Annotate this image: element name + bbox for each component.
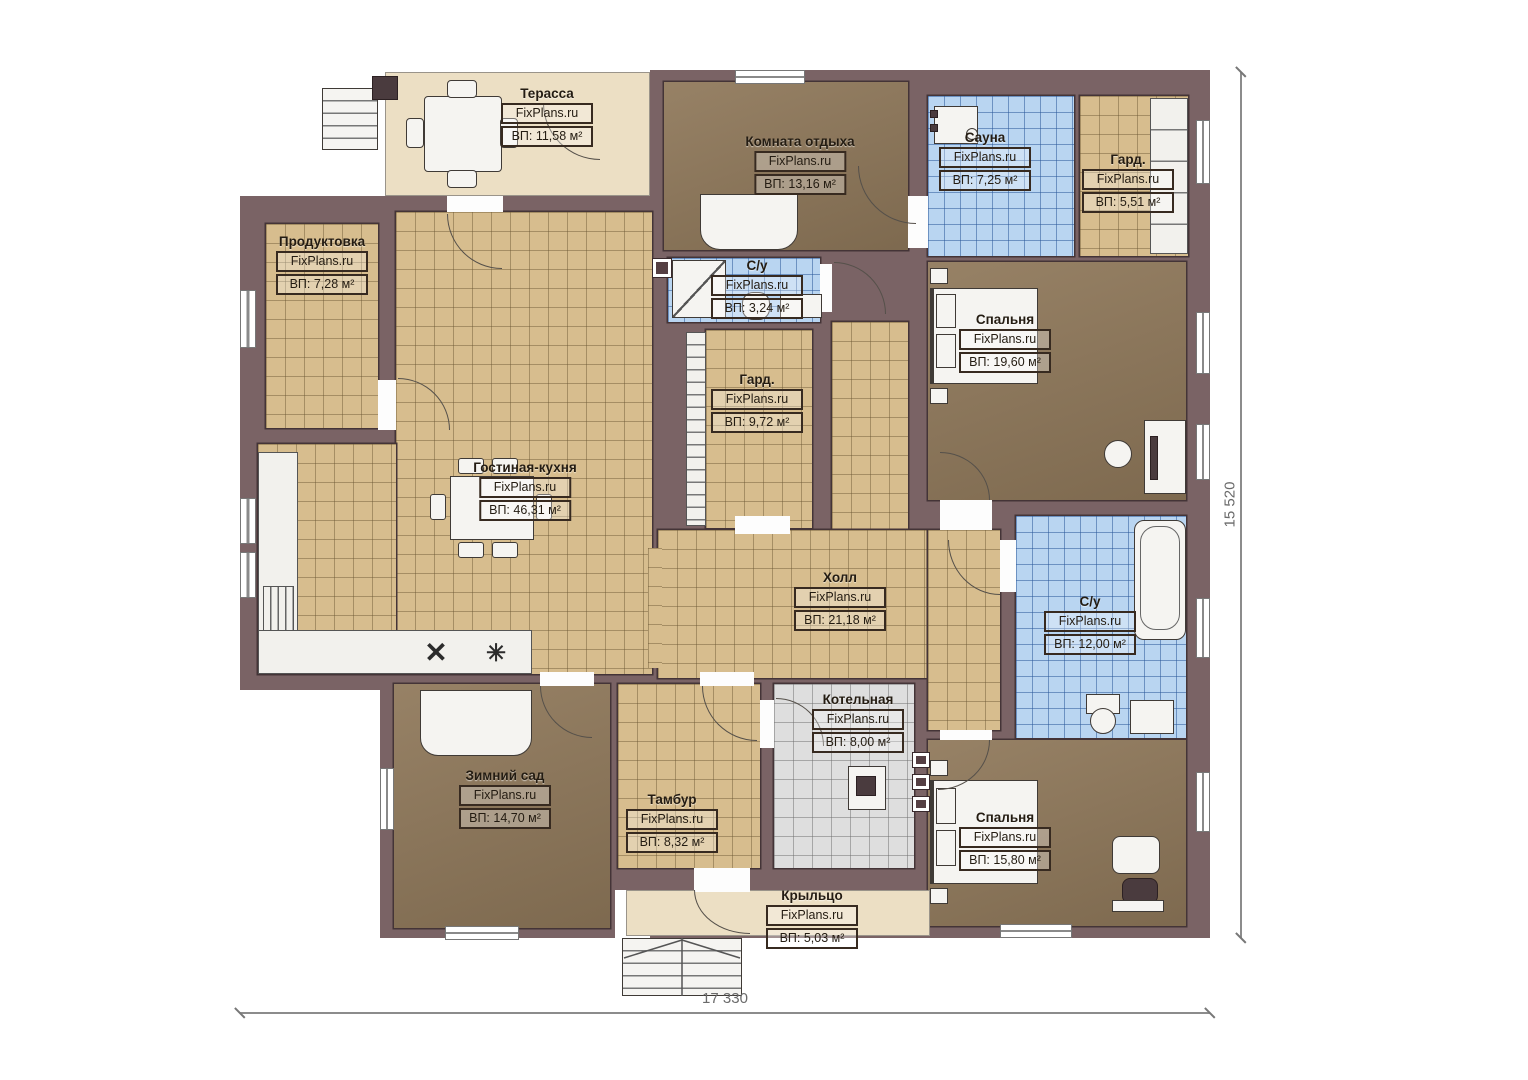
room-name: Гард.: [1110, 152, 1145, 167]
brand-watermark: FixPlans.ru: [459, 785, 551, 806]
bedroom1-nightstand-1: [930, 268, 948, 284]
door-opening-bathroom-large: [1000, 540, 1016, 592]
bedroom2-tray: [1112, 900, 1164, 912]
room-area: ВП: 9,72 м²: [711, 412, 803, 433]
chimney-panel: [652, 258, 672, 278]
brand-watermark: FixPlans.ru: [1044, 611, 1136, 632]
door-opening-bedroom2: [940, 730, 992, 740]
room-label-winter-garden: Зимний сад FixPlans.ru ВП: 14,70 м²: [459, 768, 551, 829]
window-living-left-2: [240, 552, 256, 598]
terrace-stairs: [322, 88, 378, 150]
dining-chair-5: [430, 494, 446, 520]
room-name: С/у: [1079, 594, 1100, 609]
door-opening-bedroom1: [940, 500, 992, 530]
bedroom2-nightstand-2: [930, 888, 948, 904]
room-area: ВП: 7,28 м²: [276, 274, 368, 295]
toilet-large-bowl: [1090, 708, 1116, 734]
terrace-pillar: [372, 76, 398, 100]
room-label-boiler: Котельная FixPlans.ru ВП: 8,00 м²: [812, 692, 904, 753]
room-label-rest-room: Комната отдыха FixPlans.ru ВП: 13,16 м²: [745, 134, 854, 195]
door-opening-vestibule: [700, 672, 754, 686]
bedroom2-crib: [1112, 836, 1160, 874]
window-bedroom2-bottom: [1000, 924, 1072, 938]
bedroom1-tv: [1150, 436, 1158, 480]
room-name: Тамбур: [648, 792, 697, 807]
terrace-table: [424, 96, 502, 172]
rest-room-sofa: [700, 194, 798, 250]
room-label-wardrobe2: Гард. FixPlans.ru ВП: 9,72 м²: [711, 372, 803, 433]
room-label-bedroom2: Спальня FixPlans.ru ВП: 15,80 м²: [959, 810, 1051, 871]
brand-watermark: FixPlans.ru: [711, 389, 803, 410]
dining-chair-4: [492, 542, 518, 558]
room-name: Гард.: [739, 372, 774, 387]
electrical-panel-2: [912, 774, 930, 790]
room-area: ВП: 8,00 м²: [812, 732, 904, 753]
fridge: [263, 586, 294, 634]
brand-watermark: FixPlans.ru: [812, 709, 904, 730]
stove-icon: ✕: [410, 634, 462, 672]
door-opening-front: [694, 868, 750, 892]
room-area: ВП: 8,32 м²: [626, 832, 718, 853]
dimension-line-vertical: [1240, 72, 1242, 938]
window-bedroom2-right: [1196, 772, 1210, 832]
room-name: Крыльцо: [781, 888, 842, 903]
brand-watermark: FixPlans.ru: [626, 809, 718, 830]
room-living-kitchen-floor: [396, 212, 652, 674]
bedroom1-nightstand-2: [930, 388, 948, 404]
bedroom1-pillow-2: [936, 334, 956, 368]
window-living-left-1: [240, 498, 256, 544]
room-area: ВП: 21,18 м²: [794, 610, 886, 631]
room-name: Спальня: [976, 312, 1034, 327]
terrace-chair-top: [447, 80, 477, 98]
winter-garden-sofa: [420, 690, 532, 756]
boiler-core: [856, 776, 876, 796]
room-name: Холл: [823, 570, 857, 585]
porch-stairs: [622, 938, 742, 996]
door-opening-wardrobe2: [735, 516, 790, 534]
porch-stairs-arrow: [622, 938, 742, 996]
brand-watermark: FixPlans.ru: [959, 827, 1051, 848]
bedroom1-pillow-1: [936, 294, 956, 328]
room-label-pantry: Продуктовка FixPlans.ru ВП: 7,28 м²: [276, 234, 368, 295]
room-name: Комната отдыха: [745, 134, 854, 149]
electrical-panel-1: [912, 752, 930, 768]
room-area: ВП: 15,80 м²: [959, 850, 1051, 871]
bedroom2-pillow-1: [936, 788, 956, 824]
terrace-chair-left: [406, 118, 424, 148]
room-area: ВП: 14,70 м²: [459, 808, 551, 829]
window-bedroom1-right-1: [1196, 312, 1210, 374]
room-label-hall: Холл FixPlans.ru ВП: 21,18 м²: [794, 570, 886, 631]
brand-watermark: FixPlans.ru: [959, 329, 1051, 350]
room-area: ВП: 19,60 м²: [959, 352, 1051, 373]
dimension-height-value: 15 520: [1222, 470, 1239, 540]
sauna-vent-2: [930, 124, 938, 132]
window-bedroom1-right-2: [1196, 424, 1210, 480]
room-label-terrace: Терасса FixPlans.ru ВП: 11,58 м²: [501, 86, 593, 147]
bedroom1-chair: [1104, 440, 1132, 468]
room-name: Продуктовка: [279, 234, 365, 249]
room-label-bathroom-small: С/у FixPlans.ru ВП: 3,24 м²: [711, 258, 803, 319]
bedroom2-pillow-2: [936, 830, 956, 866]
door-opening-pantry: [378, 380, 396, 430]
dimension-line-horizontal: [240, 1012, 1210, 1014]
room-area: ВП: 12,00 м²: [1044, 634, 1136, 655]
electrical-panel-3: [912, 796, 930, 812]
sauna-vent-1: [930, 110, 938, 118]
dining-chair-3: [458, 542, 484, 558]
brand-watermark: FixPlans.ru: [1082, 169, 1174, 190]
washer: [1130, 700, 1174, 734]
room-area: ВП: 5,03 м²: [766, 928, 858, 949]
room-name: Гостиная-кухня: [473, 460, 576, 475]
brand-watermark: FixPlans.ru: [501, 103, 593, 124]
room-name: Котельная: [823, 692, 894, 707]
door-opening-terrace-living: [447, 196, 503, 212]
room-label-wardrobe1: Гард. FixPlans.ru ВП: 5,51 м²: [1082, 152, 1174, 213]
room-area: ВП: 13,16 м²: [754, 174, 846, 195]
hall-corridor-floor: [832, 322, 908, 534]
wardrobe2-closet: [686, 332, 706, 526]
room-label-porch: Крыльцо FixPlans.ru ВП: 5,03 м²: [766, 888, 858, 949]
window-wardrobe1-right: [1196, 120, 1210, 184]
window-winter-garden-bottom: [445, 926, 519, 940]
sink-icon: ✳: [474, 636, 518, 672]
brand-watermark: FixPlans.ru: [766, 905, 858, 926]
dimension-width-value: 17 330: [665, 990, 785, 1007]
room-area: ВП: 3,24 м²: [711, 298, 803, 319]
room-area: ВП: 11,58 м²: [501, 126, 593, 147]
room-area: ВП: 46,31 м²: [479, 500, 571, 521]
room-label-bedroom1: Спальня FixPlans.ru ВП: 19,60 м²: [959, 312, 1051, 373]
brand-watermark: FixPlans.ru: [711, 275, 803, 296]
brand-watermark: FixPlans.ru: [479, 477, 571, 498]
room-name: Спальня: [976, 810, 1034, 825]
room-name: Зимний сад: [466, 768, 545, 783]
room-area: ВП: 7,25 м²: [939, 170, 1031, 191]
floor-plan: ✕ ✳ Те: [0, 0, 1528, 1080]
window-rest-room-top: [735, 70, 805, 84]
living-hall-passage: [648, 548, 662, 668]
window-pantry-left: [240, 290, 256, 348]
room-label-sauna: Сауна FixPlans.ru ВП: 7,25 м²: [939, 130, 1031, 191]
room-name: Терасса: [520, 86, 574, 101]
door-opening-boiler: [760, 700, 774, 748]
room-name: Сауна: [965, 130, 1006, 145]
window-bathroom-large-right: [1196, 598, 1210, 658]
brand-watermark: FixPlans.ru: [939, 147, 1031, 168]
brand-watermark: FixPlans.ru: [276, 251, 368, 272]
room-name: С/у: [746, 258, 767, 273]
door-opening-winter-garden: [540, 672, 594, 686]
brand-watermark: FixPlans.ru: [794, 587, 886, 608]
room-label-vestibule: Тамбур FixPlans.ru ВП: 8,32 м²: [626, 792, 718, 853]
brand-watermark: FixPlans.ru: [754, 151, 846, 172]
window-winter-garden-left: [380, 768, 394, 830]
room-label-bathroom-large: С/у FixPlans.ru ВП: 12,00 м²: [1044, 594, 1136, 655]
room-hall-floor: [658, 530, 928, 678]
room-label-living-kitchen: Гостиная-кухня FixPlans.ru ВП: 46,31 м²: [473, 460, 576, 521]
bathtub-inner: [1140, 526, 1180, 630]
terrace-chair-bottom: [447, 170, 477, 188]
room-area: ВП: 5,51 м²: [1082, 192, 1174, 213]
